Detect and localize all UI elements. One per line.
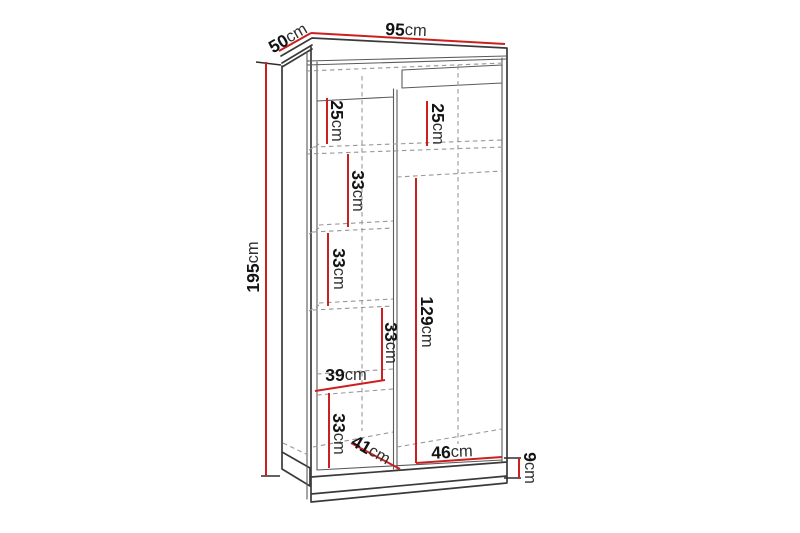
wardrobe-dimension-diagram: 50cm 95cm 195cm 25cm 25cm 33cm 33cm 33cm… — [0, 0, 800, 533]
dimension-unit: cm — [349, 190, 367, 212]
dimension-value: 33 — [329, 248, 349, 268]
dimension-value: 33 — [381, 322, 401, 342]
dimension-unit: cm — [404, 21, 427, 40]
dimension-value: 46 — [431, 442, 451, 463]
dimension-label-left-bottom-shelf: 33cm — [329, 413, 349, 454]
dimension-label-hanging-space: 129cm — [417, 296, 437, 347]
dimension-label-plinth-height: 9cm — [520, 452, 540, 484]
dimension-label-width: 95cm — [385, 19, 427, 41]
dimension-value: 195 — [243, 263, 263, 292]
dimension-label-left-top-shelf: 25cm — [327, 100, 347, 141]
dimension-unit: cm — [328, 120, 346, 142]
dimension-unit: cm — [429, 123, 447, 145]
dimension-unit: cm — [345, 366, 367, 384]
dimension-label-right-bottom-width: 46cm — [431, 441, 473, 462]
dimension-value: 33 — [329, 413, 349, 433]
dimension-value: 25 — [327, 100, 347, 120]
dimension-label-left-shelf-2: 33cm — [329, 248, 349, 289]
dimension-unit: cm — [330, 268, 348, 290]
diagram-background — [0, 0, 800, 533]
dimension-unit: cm — [382, 342, 400, 364]
dimension-value: 25 — [428, 103, 448, 123]
dimension-value: 95 — [385, 19, 406, 40]
dimension-unit: cm — [330, 433, 348, 455]
dimension-label-left-shelf-3: 33cm — [381, 322, 401, 363]
dimension-unit: cm — [450, 442, 473, 461]
dimension-unit: cm — [521, 462, 539, 484]
dimension-unit: cm — [244, 241, 262, 263]
dimension-label-height: 195cm — [243, 241, 263, 292]
dimension-value: 129 — [417, 296, 437, 325]
diagram-svg: 50cm 95cm 195cm 25cm 25cm 33cm 33cm 33cm… — [0, 0, 800, 533]
dimension-unit: cm — [418, 326, 436, 348]
dimension-label-left-shelf-width: 39cm — [325, 365, 366, 385]
dimension-label-left-shelf-1: 33cm — [348, 170, 368, 211]
dimension-value: 9 — [520, 452, 540, 462]
dimension-value: 39 — [325, 365, 345, 385]
dimension-value: 33 — [348, 170, 368, 190]
dimension-label-right-top-shelf: 25cm — [428, 103, 448, 144]
